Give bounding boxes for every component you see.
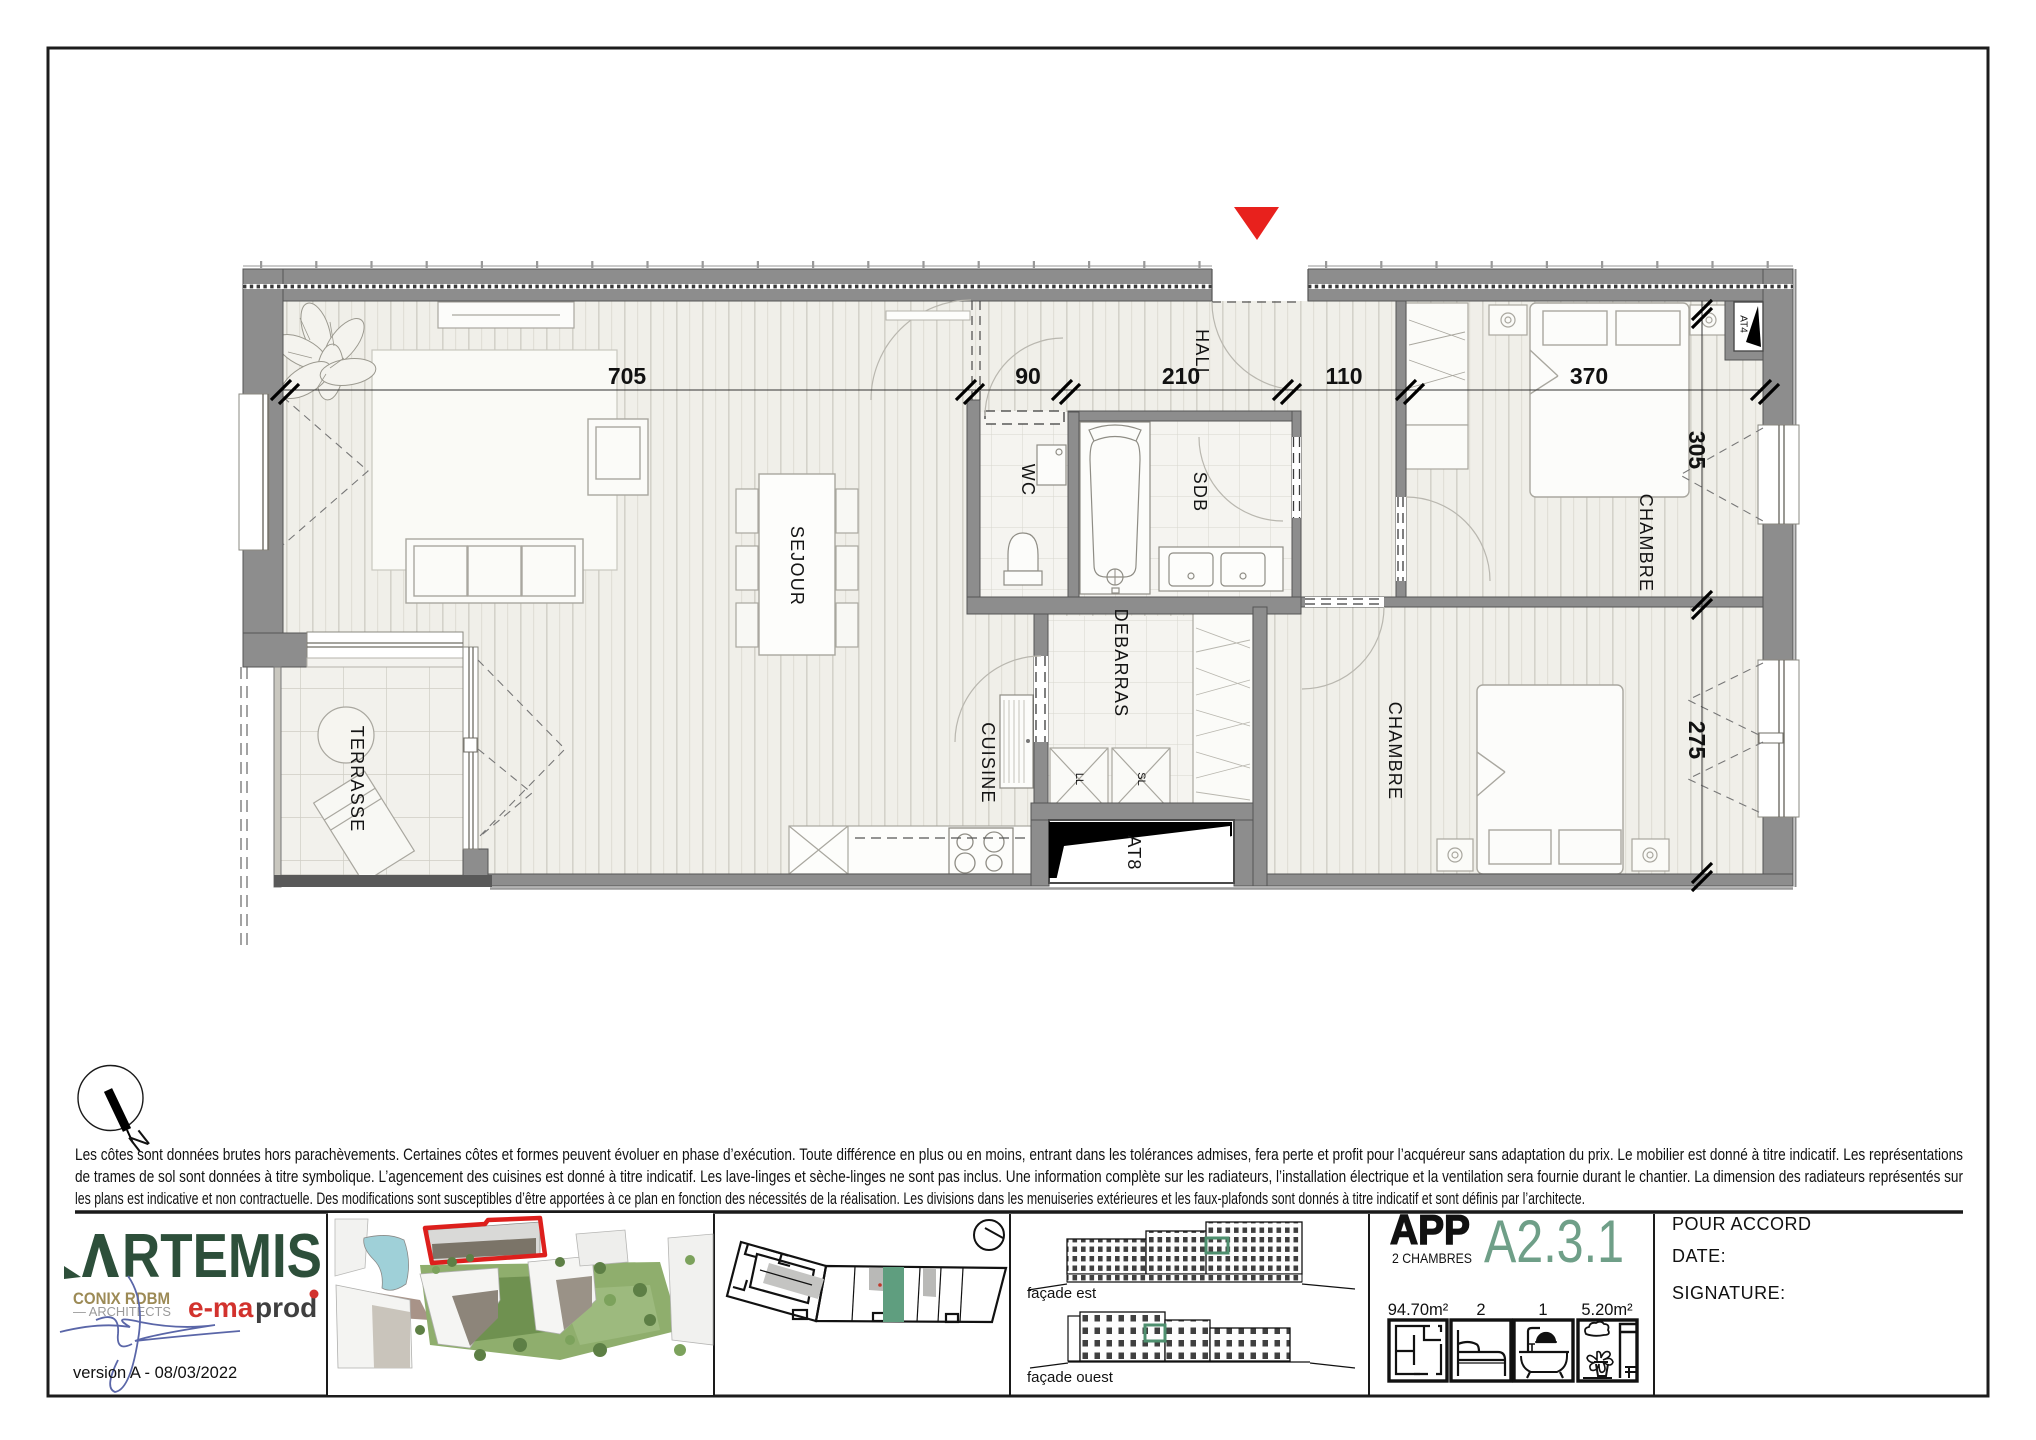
svg-text:TERRASSE: TERRASSE bbox=[347, 726, 367, 833]
svg-text:A2.3.1: A2.3.1 bbox=[1484, 1208, 1624, 1275]
svg-text:275: 275 bbox=[1684, 721, 1710, 760]
svg-text:5.20m²: 5.20m² bbox=[1581, 1301, 1633, 1319]
svg-text:— ARCHITECTS: — ARCHITECTS bbox=[73, 1305, 171, 1319]
svg-text:Les côtes sont données brutes: Les côtes sont données brutes hors parac… bbox=[75, 1146, 1963, 1164]
svg-text:de trames de sol sont données: de trames de sol sont données à titre sy… bbox=[75, 1168, 1964, 1186]
svg-text:RTEMIS: RTEMIS bbox=[122, 1222, 322, 1291]
svg-text:prod: prod bbox=[255, 1292, 317, 1323]
svg-text:façade ouest: façade ouest bbox=[1027, 1369, 1114, 1386]
svg-text:90: 90 bbox=[1015, 363, 1041, 389]
svg-text:WC: WC bbox=[1018, 464, 1038, 496]
svg-text:305: 305 bbox=[1684, 431, 1710, 470]
svg-text:LL: LL bbox=[1073, 773, 1085, 785]
svg-text:CUISINE: CUISINE bbox=[978, 722, 998, 803]
svg-text:CHAMBRE: CHAMBRE bbox=[1385, 702, 1405, 800]
svg-text:110: 110 bbox=[1325, 363, 1362, 389]
svg-text:2 CHAMBRES: 2 CHAMBRES bbox=[1392, 1250, 1472, 1266]
svg-text:les plans est indicative et no: les plans est indicative et non contract… bbox=[75, 1190, 1585, 1208]
svg-text:SEJOUR: SEJOUR bbox=[787, 526, 807, 606]
svg-text:370: 370 bbox=[1570, 363, 1608, 389]
svg-text:CHAMBRE: CHAMBRE bbox=[1636, 494, 1656, 592]
svg-text:AT4: AT4 bbox=[1738, 315, 1749, 333]
svg-text:SIGNATURE:: SIGNATURE: bbox=[1672, 1283, 1786, 1303]
svg-text:HALL: HALL bbox=[1192, 329, 1212, 379]
svg-text:DEBARRAS: DEBARRAS bbox=[1111, 609, 1131, 718]
svg-text:POUR ACCORD: POUR ACCORD bbox=[1672, 1214, 1812, 1234]
svg-text:version A - 08/03/2022: version A - 08/03/2022 bbox=[73, 1364, 237, 1382]
svg-text:94.70m²: 94.70m² bbox=[1388, 1301, 1449, 1319]
svg-text:1: 1 bbox=[1538, 1301, 1547, 1319]
svg-text:SL: SL bbox=[1135, 772, 1147, 785]
svg-text:DATE:: DATE: bbox=[1672, 1246, 1726, 1266]
svg-text:SDB: SDB bbox=[1190, 472, 1210, 513]
svg-text:705: 705 bbox=[608, 363, 647, 389]
svg-text:APP: APP bbox=[1390, 1206, 1470, 1253]
svg-text:façade est: façade est bbox=[1027, 1285, 1097, 1302]
svg-text:AT8: AT8 bbox=[1124, 835, 1144, 870]
svg-text:e-ma: e-ma bbox=[188, 1292, 254, 1323]
svg-text:2: 2 bbox=[1476, 1301, 1485, 1319]
